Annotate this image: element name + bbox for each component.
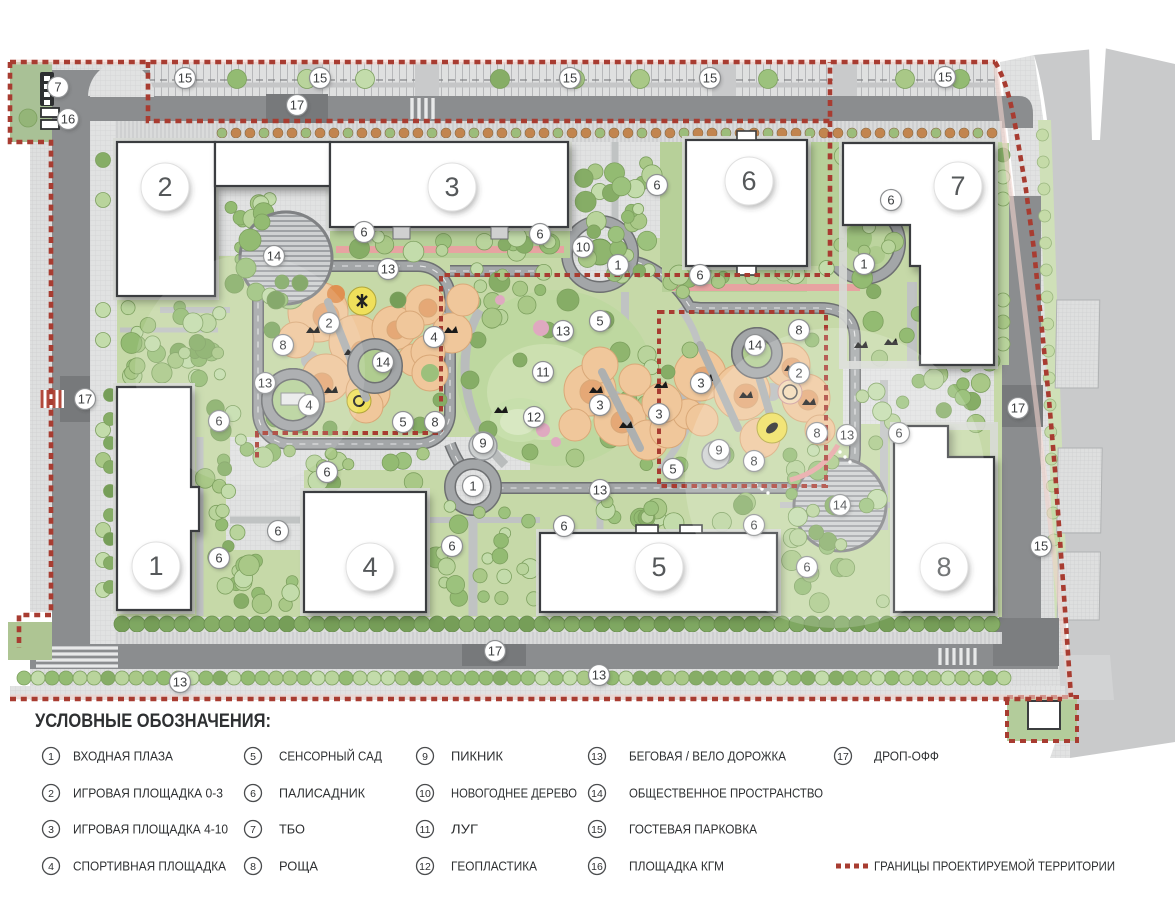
svg-text:8: 8	[250, 861, 256, 873]
svg-text:12: 12	[419, 861, 431, 873]
svg-text:13: 13	[556, 323, 570, 338]
svg-text:1: 1	[469, 478, 476, 493]
svg-text:17: 17	[837, 751, 849, 763]
svg-text:13: 13	[173, 674, 187, 689]
svg-text:СПОРТИВНАЯ ПЛОЩАДКА: СПОРТИВНАЯ ПЛОЩАДКА	[73, 860, 227, 874]
svg-text:6: 6	[323, 464, 330, 479]
svg-text:14: 14	[591, 788, 603, 800]
svg-text:7: 7	[250, 824, 256, 836]
svg-text:5: 5	[596, 313, 603, 328]
svg-text:12: 12	[527, 409, 541, 424]
svg-text:ПАЛИСАДНИК: ПАЛИСАДНИК	[279, 787, 366, 801]
svg-text:3: 3	[596, 397, 603, 412]
svg-text:3: 3	[697, 375, 704, 390]
svg-text:РОЩА: РОЩА	[279, 860, 319, 874]
svg-text:6: 6	[741, 166, 756, 196]
svg-text:3: 3	[444, 172, 459, 202]
svg-text:ГРАНИЦЫ ПРОЕКТИРУЕМОЙ ТЕРРИТОР: ГРАНИЦЫ ПРОЕКТИРУЕМОЙ ТЕРРИТОРИИ	[874, 859, 1115, 874]
svg-text:5: 5	[250, 751, 256, 763]
svg-text:8: 8	[431, 414, 438, 429]
svg-text:10: 10	[576, 239, 590, 254]
svg-text:1: 1	[614, 257, 621, 272]
svg-text:16: 16	[61, 111, 75, 126]
svg-text:1: 1	[48, 751, 54, 763]
svg-text:11: 11	[536, 364, 550, 379]
svg-text:15: 15	[703, 70, 717, 85]
svg-text:6: 6	[653, 177, 660, 192]
svg-text:ОБЩЕСТВЕННОЕ ПРОСТРАНСТВО: ОБЩЕСТВЕННОЕ ПРОСТРАНСТВО	[629, 787, 823, 801]
svg-text:3: 3	[48, 824, 54, 836]
svg-text:13: 13	[593, 482, 607, 497]
svg-text:ИГРОВАЯ ПЛОЩАДКА 4-10: ИГРОВАЯ ПЛОЩАДКА 4-10	[73, 823, 228, 837]
svg-text:ПЛОЩАДКА КГМ: ПЛОЩАДКА КГМ	[629, 860, 724, 874]
svg-text:1: 1	[148, 551, 163, 581]
svg-text:ЛУГ: ЛУГ	[451, 823, 478, 837]
svg-text:4: 4	[362, 552, 377, 582]
svg-text:6: 6	[696, 267, 703, 282]
svg-text:2: 2	[157, 172, 172, 202]
svg-text:16: 16	[591, 861, 603, 873]
svg-text:6: 6	[560, 518, 567, 533]
svg-text:ПИКНИК: ПИКНИК	[451, 750, 504, 764]
svg-text:4: 4	[48, 861, 54, 873]
svg-text:6: 6	[274, 523, 281, 538]
svg-text:9: 9	[479, 435, 486, 450]
svg-text:6: 6	[250, 788, 256, 800]
svg-text:6: 6	[887, 192, 894, 207]
svg-text:14: 14	[376, 354, 390, 369]
svg-text:13: 13	[592, 667, 606, 682]
svg-text:УСЛОВНЫЕ ОБОЗНАЧЕНИЯ:: УСЛОВНЫЕ ОБОЗНАЧЕНИЯ:	[35, 711, 271, 732]
svg-text:10: 10	[419, 788, 431, 800]
svg-text:7: 7	[54, 79, 61, 94]
svg-text:15: 15	[938, 69, 952, 84]
svg-text:17: 17	[290, 97, 304, 112]
svg-text:17: 17	[78, 391, 92, 406]
svg-text:ИГРОВАЯ ПЛОЩАДКА 0-3: ИГРОВАЯ ПЛОЩАДКА 0-3	[73, 787, 223, 801]
svg-text:5: 5	[669, 461, 676, 476]
svg-text:15: 15	[178, 70, 192, 85]
svg-text:15: 15	[1034, 538, 1048, 553]
svg-text:1: 1	[860, 256, 867, 271]
svg-text:БЕГОВАЯ / ВЕЛО ДОРОЖКА: БЕГОВАЯ / ВЕЛО ДОРОЖКА	[629, 750, 787, 764]
svg-text:ВХОДНАЯ ПЛАЗА: ВХОДНАЯ ПЛАЗА	[73, 750, 174, 764]
svg-text:СЕНСОРНЫЙ САД: СЕНСОРНЫЙ САД	[279, 749, 382, 764]
svg-text:6: 6	[448, 538, 455, 553]
svg-text:6: 6	[215, 550, 222, 565]
svg-text:6: 6	[536, 226, 543, 241]
svg-text:9: 9	[422, 751, 428, 763]
svg-text:15: 15	[563, 70, 577, 85]
svg-text:5: 5	[399, 414, 406, 429]
svg-text:17: 17	[488, 643, 502, 658]
svg-text:ГЕОПЛАСТИКА: ГЕОПЛАСТИКА	[451, 860, 538, 874]
svg-text:ДРОП-ОФФ: ДРОП-ОФФ	[874, 750, 939, 764]
svg-text:4: 4	[430, 329, 437, 344]
svg-text:13: 13	[381, 261, 395, 276]
svg-text:ТБО: ТБО	[279, 823, 305, 837]
svg-text:11: 11	[420, 824, 431, 836]
svg-text:13: 13	[591, 751, 603, 763]
svg-text:15: 15	[591, 824, 603, 836]
svg-text:НОВОГОДНЕЕ ДЕРЕВО: НОВОГОДНЕЕ ДЕРЕВО	[451, 787, 577, 801]
svg-text:ГОСТЕВАЯ ПАРКОВКА: ГОСТЕВАЯ ПАРКОВКА	[629, 823, 758, 837]
svg-text:15: 15	[313, 70, 327, 85]
svg-text:5: 5	[651, 552, 666, 582]
svg-text:17: 17	[1011, 400, 1025, 415]
svg-text:7: 7	[950, 171, 965, 201]
svg-text:6: 6	[360, 224, 367, 239]
svg-text:3: 3	[655, 406, 662, 421]
svg-text:2: 2	[48, 788, 54, 800]
